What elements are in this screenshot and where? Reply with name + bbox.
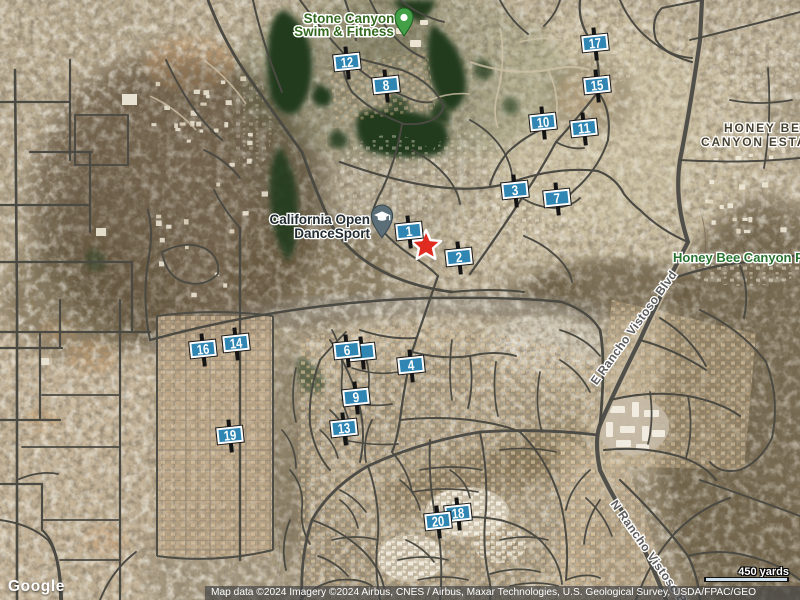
svg-text:Honey Bee Canyon Pa: Honey Bee Canyon Pa (673, 250, 800, 265)
svg-text:10: 10 (536, 113, 550, 130)
svg-text:15: 15 (590, 76, 604, 93)
svg-text:18: 18 (451, 504, 465, 521)
svg-text:11: 11 (577, 119, 591, 136)
svg-text:12: 12 (340, 53, 354, 70)
svg-text:Swim & Fitness: Swim & Fitness (294, 24, 394, 39)
svg-text:19: 19 (223, 426, 237, 443)
svg-text:17: 17 (588, 34, 602, 51)
svg-text:13: 13 (337, 419, 351, 436)
svg-text:HONEY BEE: HONEY BEE (724, 121, 800, 135)
svg-text:California Open: California Open (269, 212, 370, 227)
svg-text:14: 14 (229, 334, 243, 351)
svg-text:CANYON ESTATES: CANYON ESTATES (701, 135, 800, 149)
svg-text:DanceSport: DanceSport (294, 226, 370, 241)
svg-text:16: 16 (196, 340, 210, 357)
svg-text:20: 20 (431, 512, 445, 529)
